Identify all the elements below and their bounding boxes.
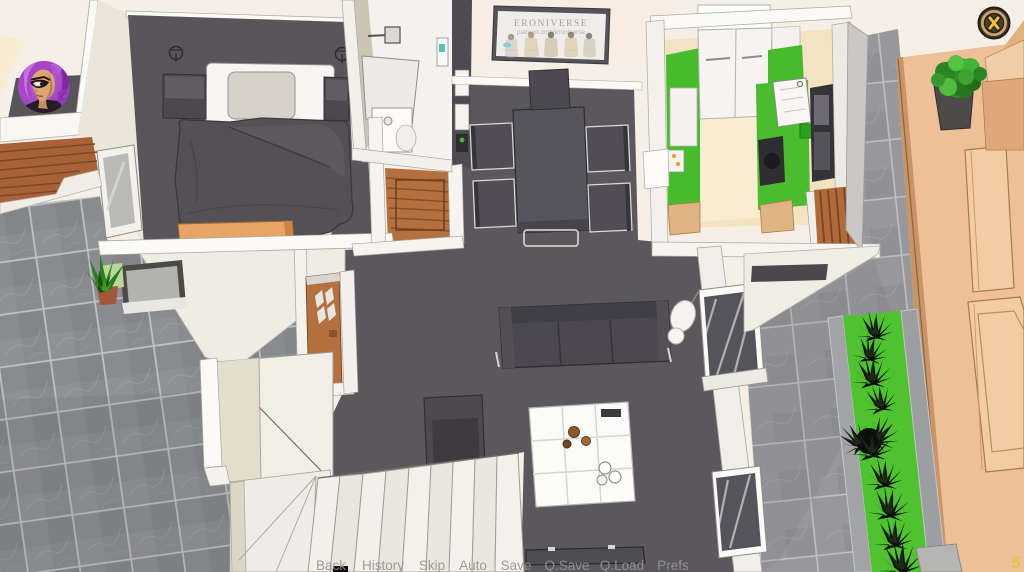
- svg-text:History: History: [362, 558, 404, 572]
- svg-text:5: 5: [1012, 555, 1021, 572]
- svg-text:Auto: Auto: [459, 558, 487, 572]
- svg-text:ERONIVERSE: ERONIVERSE: [514, 19, 588, 29]
- svg-text:Back: Back: [316, 558, 346, 572]
- svg-text:Save: Save: [501, 558, 532, 572]
- svg-text:Prefs: Prefs: [657, 558, 689, 572]
- svg-text:Q.Save: Q.Save: [544, 558, 589, 572]
- svg-text:Skip: Skip: [419, 558, 445, 572]
- svg-text:Q.Load: Q.Load: [600, 558, 644, 572]
